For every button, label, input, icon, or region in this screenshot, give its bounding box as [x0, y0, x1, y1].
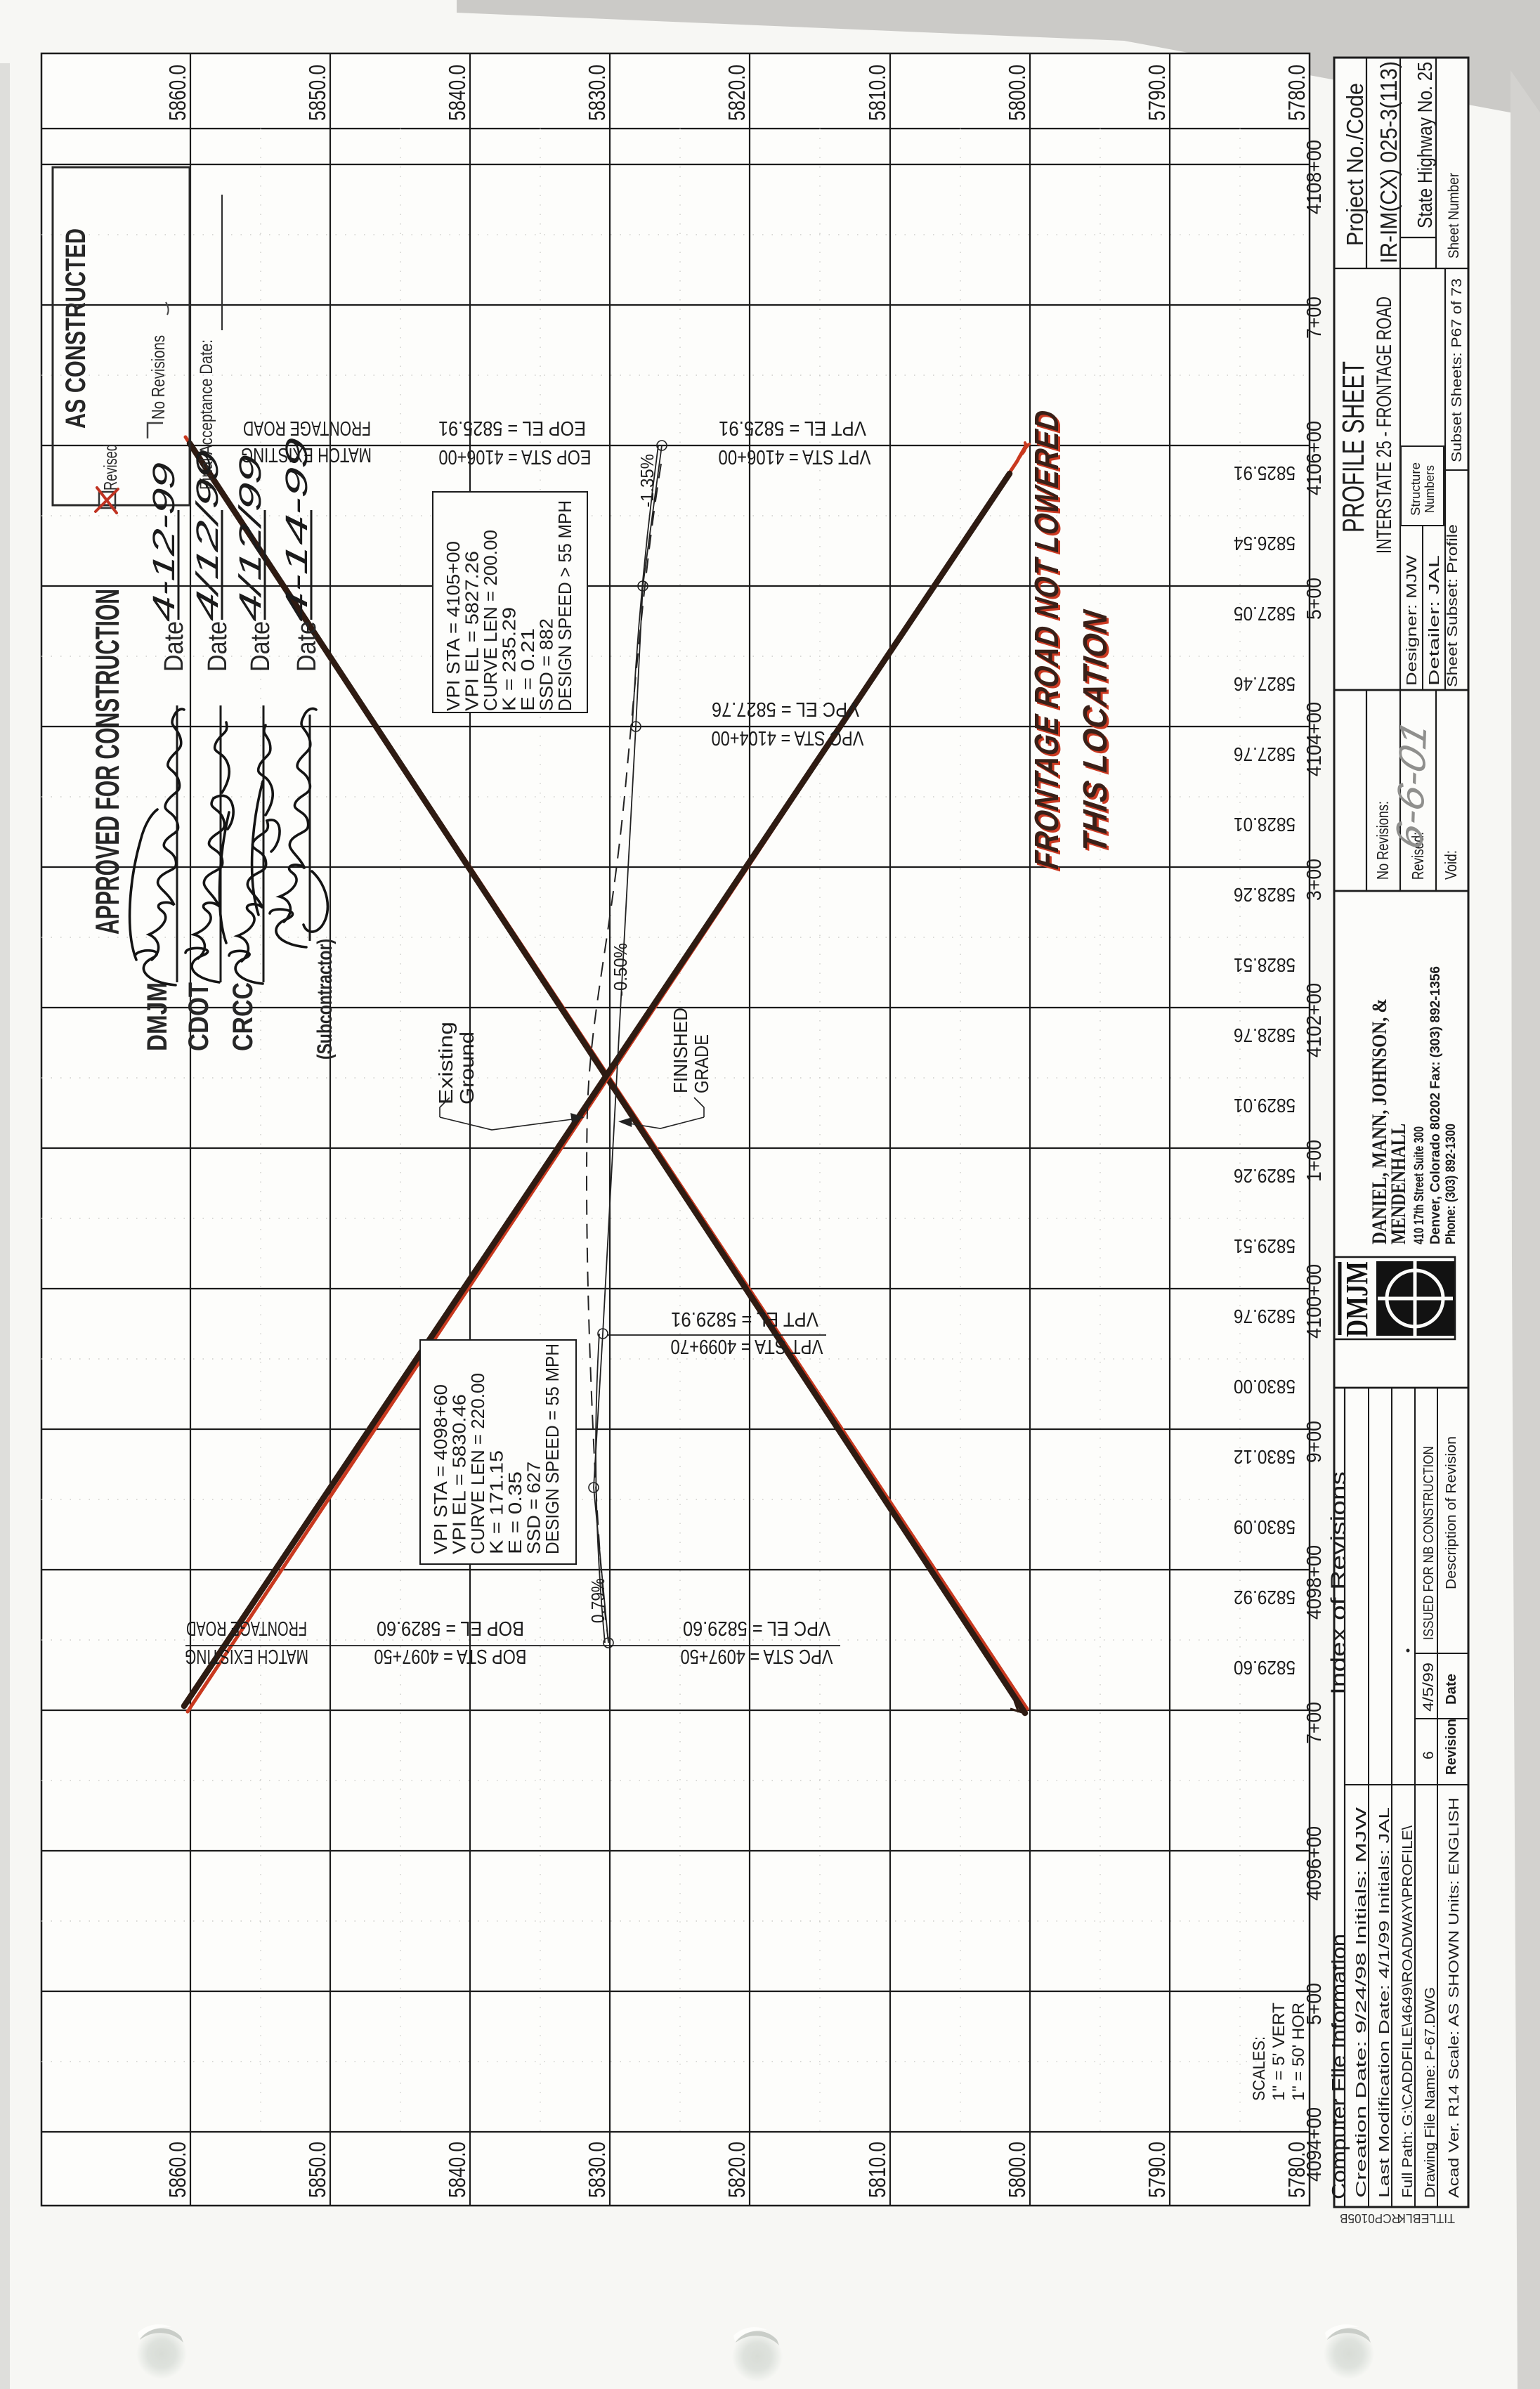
svg-text:4-12-99: 4-12-99 — [147, 461, 181, 624]
svg-text:DESIGN SPEED > 55 MPH: DESIGN SPEED > 55 MPH — [554, 500, 575, 711]
svg-text:5840.0: 5840.0 — [444, 65, 470, 121]
svg-text:5810.0: 5810.0 — [864, 65, 890, 121]
svg-text:AS CONSTRUCTED: AS CONSTRUCTED — [60, 228, 91, 429]
svg-text:Date: Date — [203, 621, 233, 672]
svg-text:9+00: 9+00 — [1303, 1421, 1326, 1463]
svg-text:Existing: Existing — [435, 1022, 457, 1105]
svg-text:5800.0: 5800.0 — [1004, 65, 1030, 121]
svg-text:Creation Date: 9/24/98: Creation Date: 9/24/98 Initials: MJW — [1354, 1807, 1369, 2198]
svg-text:FINISHED: FINISHED — [670, 1008, 691, 1093]
svg-text:4100+00: 4100+00 — [1303, 1264, 1326, 1339]
svg-text:5829.26: 5829.26 — [1234, 1165, 1296, 1187]
svg-text:5830.00: 5830.00 — [1234, 1376, 1296, 1398]
svg-text:5+00: 5+00 — [1303, 578, 1326, 620]
svg-text:6: 6 — [1421, 1751, 1437, 1759]
svg-text:4094+00: 4094+00 — [1303, 2107, 1326, 2182]
svg-text:5790.0: 5790.0 — [1144, 2142, 1170, 2198]
svg-text:6-6-01: 6-6-01 — [1388, 717, 1435, 854]
svg-text:5830.12: 5830.12 — [1234, 1446, 1296, 1468]
svg-text:5830.09: 5830.09 — [1234, 1516, 1296, 1538]
svg-text:CURVE LEN = 220.00: CURVE LEN = 220.00 — [467, 1373, 488, 1554]
svg-text:-0.50%: -0.50% — [610, 943, 631, 996]
svg-text:PROFILE SHEET: PROFILE SHEET — [1336, 361, 1371, 533]
svg-text:VPI EL = 5827.26: VPI EL = 5827.26 — [462, 551, 483, 711]
svg-text:5840.0: 5840.0 — [444, 2142, 470, 2198]
svg-text:4104+00: 4104+00 — [1303, 702, 1326, 776]
svg-text:5820.0: 5820.0 — [724, 65, 750, 121]
svg-text:Project No./Code: Project No./Code — [1342, 83, 1368, 246]
svg-text:VPI STA = 4105+00: VPI STA = 4105+00 — [443, 541, 464, 711]
svg-text:Full Path: G:\CADDFILE\4649\RO: Full Path: G:\CADDFILE\4649\ROADWAY\PROF… — [1400, 1825, 1416, 2198]
svg-text:FRONTAGE ROAD: FRONTAGE ROAD — [243, 417, 371, 439]
svg-text:410 17th Street Suite 300: 410 17th Street Suite 300 — [1412, 1126, 1427, 1244]
svg-text:SSD = 627: SSD = 627 — [523, 1462, 544, 1554]
svg-text:RCP0105B: RCP0105B — [1340, 2211, 1400, 2225]
svg-text:EOP EL = 5825.91: EOP EL = 5825.91 — [438, 417, 586, 439]
svg-text:-1.35%: -1.35% — [637, 454, 658, 507]
svg-text:No Revisions: No Revisions — [148, 335, 169, 419]
svg-text:SCALES:: SCALES: — [1250, 2036, 1269, 2101]
svg-text:5829.51: 5829.51 — [1234, 1235, 1296, 1257]
svg-text:5828.26: 5828.26 — [1234, 884, 1296, 906]
svg-text:5827.05: 5827.05 — [1234, 603, 1296, 625]
svg-text:5828.01: 5828.01 — [1234, 814, 1296, 835]
svg-text:Drawing File Name: P-67.DWG: Drawing File Name: P-67.DWG — [1423, 1987, 1438, 2198]
svg-text:VPT EL = 5825.91: VPT EL = 5825.91 — [719, 417, 866, 439]
svg-text:5828.76: 5828.76 — [1234, 1024, 1296, 1046]
svg-text:FRONTAGE ROAD: FRONTAGE ROAD — [186, 1617, 307, 1639]
svg-text:1+00: 1+00 — [1303, 1140, 1326, 1182]
svg-text:5827.76: 5827.76 — [1234, 743, 1296, 765]
svg-text:Description of Revision: Description of Revision — [1444, 1436, 1459, 1589]
svg-text:DESIGN SPEED = 55 MPH: DESIGN SPEED = 55 MPH — [542, 1343, 563, 1554]
svg-text:MENDENHALL: MENDENHALL — [1387, 1124, 1410, 1244]
svg-text:VPC EL = 5829.60: VPC EL = 5829.60 — [683, 1617, 830, 1639]
svg-text:4096+00: 4096+00 — [1303, 1826, 1326, 1901]
svg-text:5830.0: 5830.0 — [584, 65, 610, 121]
svg-text:CDOT: CDOT — [183, 982, 214, 1051]
svg-text:GRADE: GRADE — [691, 1034, 712, 1093]
svg-text:Revised: Revised — [100, 444, 121, 490]
svg-text:TITLEBLK: TITLEBLK — [1397, 2211, 1455, 2225]
svg-text:Date: Date — [292, 621, 322, 672]
svg-text:Date: Date — [159, 621, 189, 672]
svg-text:Ground: Ground — [456, 1031, 478, 1105]
svg-text:VPC EL = 5827.76: VPC EL = 5827.76 — [712, 698, 859, 720]
svg-text:5850.0: 5850.0 — [304, 2142, 330, 2198]
svg-text:Computer File Information: Computer File Information — [1328, 1934, 1350, 2199]
svg-text:Sheet Number: Sheet Number — [1446, 173, 1462, 259]
svg-text:K = 235.29: K = 235.29 — [499, 607, 520, 711]
svg-text:CRCC: CRCC — [228, 982, 259, 1051]
svg-text:Last Modification Date: 4/1/9: Last Modification Date: 4/1/99 Initials:… — [1377, 1807, 1392, 2198]
svg-text:E = 0.21: E = 0.21 — [517, 628, 538, 711]
svg-text:FRONTAGE ROAD NOT LOWERED: FRONTAGE ROAD NOT LOWERED — [1028, 408, 1066, 871]
svg-text:7+00: 7+00 — [1303, 297, 1326, 339]
svg-text:BOP STA = 4097+50: BOP STA = 4097+50 — [374, 1645, 527, 1667]
svg-text:4106+00: 4106+00 — [1303, 421, 1326, 495]
svg-text:5800.0: 5800.0 — [1004, 2142, 1030, 2198]
svg-text:4108+00: 4108+00 — [1303, 140, 1326, 214]
svg-text:5830.0: 5830.0 — [584, 2142, 610, 2198]
svg-text:Denver, Colorado 80202 Fax:: Denver, Colorado 80202 Fax: (303) 892-13… — [1428, 966, 1443, 1244]
svg-text:1" = 50' HOR: 1" = 50' HOR — [1289, 2003, 1308, 2101]
svg-text:THIS LOCATION: THIS LOCATION — [1076, 608, 1114, 855]
svg-text:ISSUED FOR NB CONSTRUCTION: ISSUED FOR NB CONSTRUCTION — [1421, 1446, 1437, 1640]
svg-text:VPI STA = 4098+60: VPI STA = 4098+60 — [430, 1384, 451, 1554]
svg-text:DMJM: DMJM — [142, 982, 173, 1051]
svg-text:EOP STA = 4106+00: EOP STA = 4106+00 — [439, 445, 592, 468]
svg-text:Index of Revisions: Index of Revisions — [1327, 1471, 1350, 1695]
svg-text:IR-IM(CX) 025-3(113): IR-IM(CX) 025-3(113) — [1376, 61, 1402, 263]
svg-text:Sheet Subset: Profile: Sheet Subset: Profile — [1445, 524, 1461, 687]
svg-text:SSD = 882: SSD = 882 — [536, 618, 557, 711]
svg-text:MATCH EXISTING: MATCH EXISTING — [185, 1645, 308, 1667]
svg-text:Date: Date — [246, 621, 275, 672]
svg-text:5860.0: 5860.0 — [164, 2142, 190, 2198]
svg-text:Phone: (303) 892-1300: Phone: (303) 892-1300 — [1444, 1124, 1459, 1244]
svg-text:7+00: 7+00 — [1303, 1702, 1326, 1744]
svg-text:4/12/99: 4/12/99 — [233, 453, 268, 624]
svg-text:5829.76: 5829.76 — [1234, 1306, 1296, 1327]
svg-text:Subset Sheets: P67 of 7: Subset Sheets: P67 of 73 — [1449, 278, 1465, 462]
svg-text:5826.54: 5826.54 — [1234, 533, 1296, 554]
svg-text:4/12/99: 4/12/99 — [191, 447, 225, 624]
svg-text:VPT STA = 4106+00: VPT STA = 4106+00 — [719, 445, 871, 468]
svg-text:0.79%: 0.79% — [587, 1578, 608, 1623]
svg-text:BOP EL = 5829.60: BOP EL = 5829.60 — [377, 1617, 524, 1639]
svg-text:Structure: Structure — [1409, 462, 1423, 516]
svg-text:5829.60: 5829.60 — [1234, 1657, 1296, 1679]
svg-text:Acad Ver. R14 Scale:: Acad Ver. R14 Scale: AS SHOWN Units: ENG… — [1447, 1797, 1462, 2198]
svg-text:K = 171.15: K = 171.15 — [486, 1450, 507, 1554]
svg-text:5850.0: 5850.0 — [304, 65, 330, 121]
svg-text:4098+00: 4098+00 — [1303, 1545, 1326, 1620]
svg-text:5828.51: 5828.51 — [1234, 954, 1296, 976]
svg-text:3+00: 3+00 — [1303, 859, 1326, 901]
svg-text:5810.0: 5810.0 — [864, 2142, 890, 2198]
svg-text:5827.46: 5827.46 — [1234, 673, 1296, 695]
svg-text:(Subcontractor): (Subcontractor) — [313, 939, 337, 1060]
svg-text:Revision: Revision — [1444, 1719, 1459, 1775]
svg-text:VPT STA = 4099+70: VPT STA = 4099+70 — [671, 1335, 823, 1358]
svg-text:Void:: Void: — [1442, 850, 1460, 880]
svg-text:CURVE LEN = 200.00: CURVE LEN = 200.00 — [480, 530, 501, 711]
svg-text:4-14-99: 4-14-99 — [280, 436, 314, 624]
svg-text:5829.01: 5829.01 — [1234, 1095, 1296, 1117]
svg-text:4/5/99: 4/5/99 — [1421, 1662, 1437, 1712]
svg-text:DMJM: DMJM — [1340, 1261, 1374, 1337]
svg-text:1" = 5' VERT: 1" = 5' VERT — [1270, 2003, 1288, 2101]
svg-text:APPROVED FOR CONSTRUCTION: APPROVED FOR CONSTRUCTION — [89, 589, 126, 935]
svg-text:State Highway No. 25: State Highway No. 25 — [1414, 62, 1437, 228]
svg-text:5820.0: 5820.0 — [724, 2142, 750, 2198]
svg-text:VPC STA = 4104+00: VPC STA = 4104+00 — [712, 727, 864, 749]
svg-text:5825.91: 5825.91 — [1234, 462, 1296, 484]
svg-text:Numbers: Numbers — [1423, 465, 1437, 513]
svg-text:Designer: MJW: Designer: MJW — [1404, 555, 1420, 686]
svg-text:5790.0: 5790.0 — [1144, 65, 1170, 121]
svg-text:5829.92: 5829.92 — [1234, 1587, 1296, 1608]
svg-text:4102+00: 4102+00 — [1303, 983, 1326, 1057]
svg-text:VPI EL = 5830.46: VPI EL = 5830.46 — [449, 1394, 470, 1554]
svg-text:E = 0.35: E = 0.35 — [504, 1471, 526, 1554]
svg-text:5780.0: 5780.0 — [1284, 65, 1310, 121]
svg-text:INTERSTATE 25 - FRONTAGE ROA: INTERSTATE 25 - FRONTAGE ROAD — [1373, 297, 1396, 554]
svg-text:VPC STA = 4097+50: VPC STA = 4097+50 — [681, 1645, 833, 1667]
svg-text:Detailer: JAL: Detailer: JAL — [1427, 555, 1442, 686]
svg-text:5860.0: 5860.0 — [164, 65, 190, 121]
svg-text:VPT EL = 5829.91: VPT EL = 5829.91 — [671, 1308, 818, 1330]
svg-text:Date: Date — [1444, 1674, 1459, 1705]
